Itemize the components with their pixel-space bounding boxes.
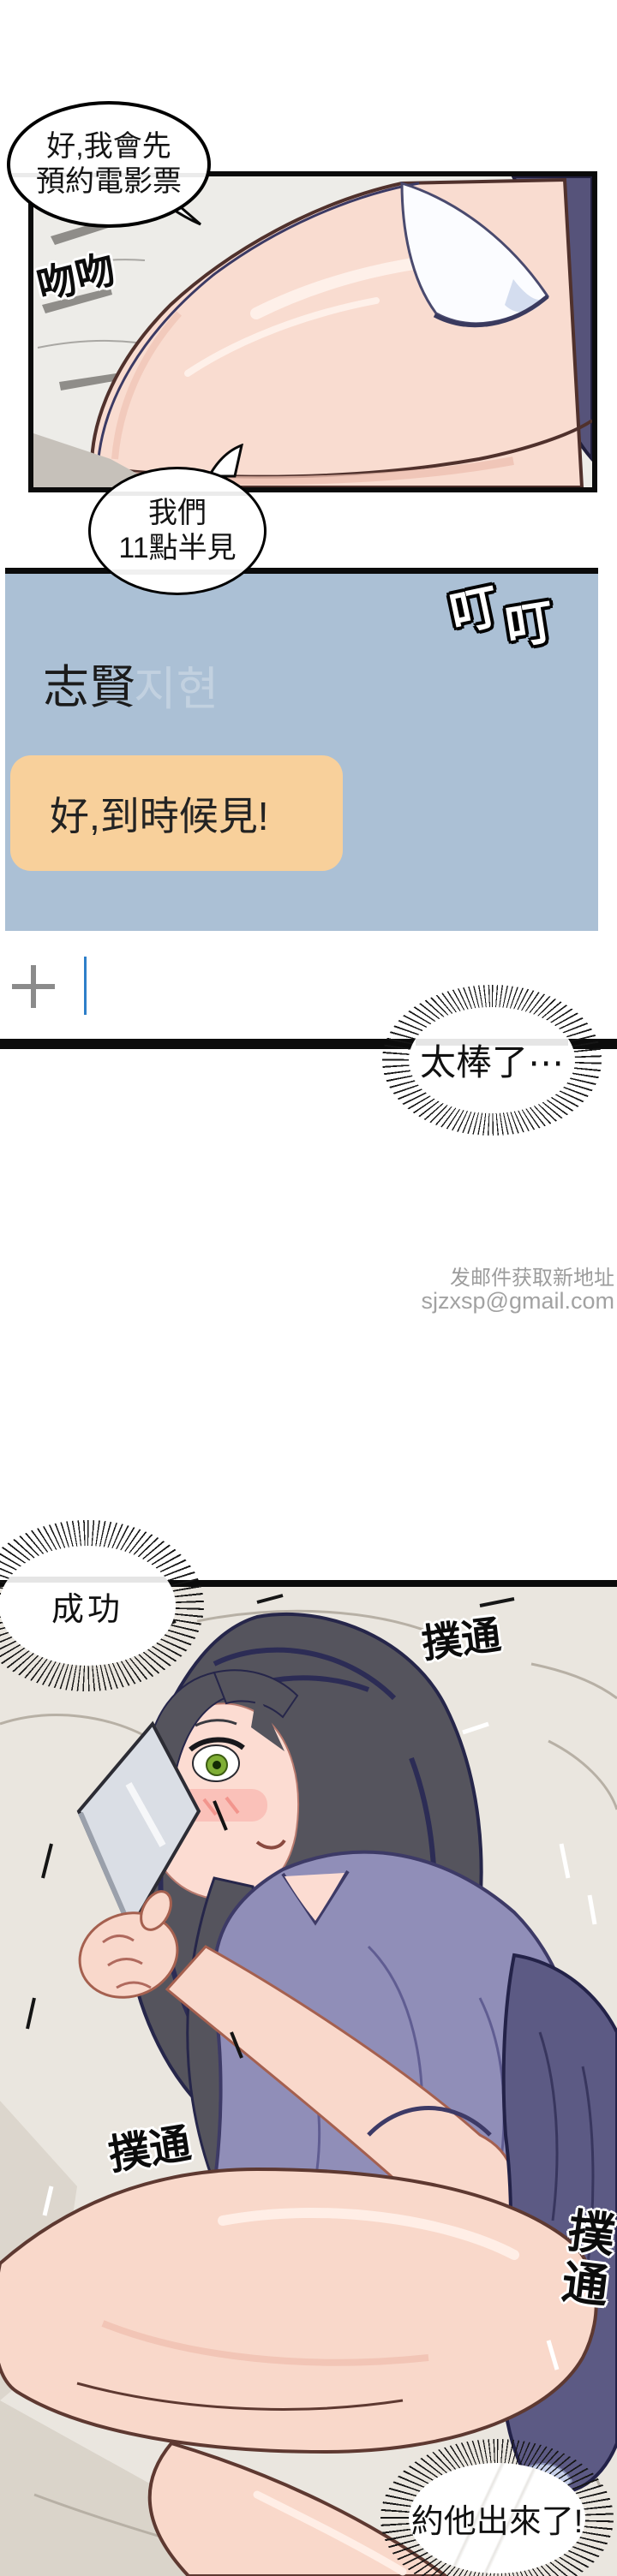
speech-bubble-meet-time: 我們 11點半見	[88, 467, 267, 595]
panel-bedroom	[0, 1580, 617, 2576]
sfx-thump-1: 撲通	[418, 1604, 503, 1670]
bedroom-artwork	[0, 1587, 617, 2576]
speech-bubble-booking: 好,我會先 預約電影票	[7, 101, 211, 228]
ghost-name-korean: 지현	[134, 651, 219, 719]
sfx-thump-3: 撲通	[544, 2204, 617, 2315]
bubble-text-line: 11點半見	[118, 531, 236, 566]
message-text: 好,到時候見!	[50, 785, 269, 842]
panel-border-ghost	[91, 492, 264, 496]
text-cursor	[84, 957, 87, 1015]
sfx-thump-2: 撲通	[104, 2109, 195, 2181]
burst-bubble-awesome: 太棒了⋯	[382, 985, 602, 1136]
watermark-line2: sjzxsp@gmail.com	[422, 1288, 614, 1315]
message-bubble: 好,到時候見!	[10, 755, 343, 871]
watermark-line1: 发邮件获取新地址	[450, 1261, 614, 1291]
burst-text: 成功	[51, 1583, 123, 1630]
burst-text: 約他出來了!	[411, 2495, 584, 2542]
panel-border-ghost	[91, 569, 264, 575]
plus-icon	[12, 965, 55, 1008]
bubble-text-line: 好,我會先	[46, 129, 171, 164]
panel-border-ghost	[6, 1577, 169, 1583]
contact-name: 志賢	[43, 649, 135, 717]
divider-ghost	[416, 1039, 569, 1046]
bubble-text-line: 我們	[148, 496, 207, 531]
comic-page: 吻吻 好,我會先 預約電影票 我們 11點半見 叮叮 지현 志賢 好,到時候見!…	[0, 0, 617, 2576]
panel-border-ghost	[10, 173, 207, 177]
bubble-text-line: 預約電影票	[36, 164, 182, 200]
